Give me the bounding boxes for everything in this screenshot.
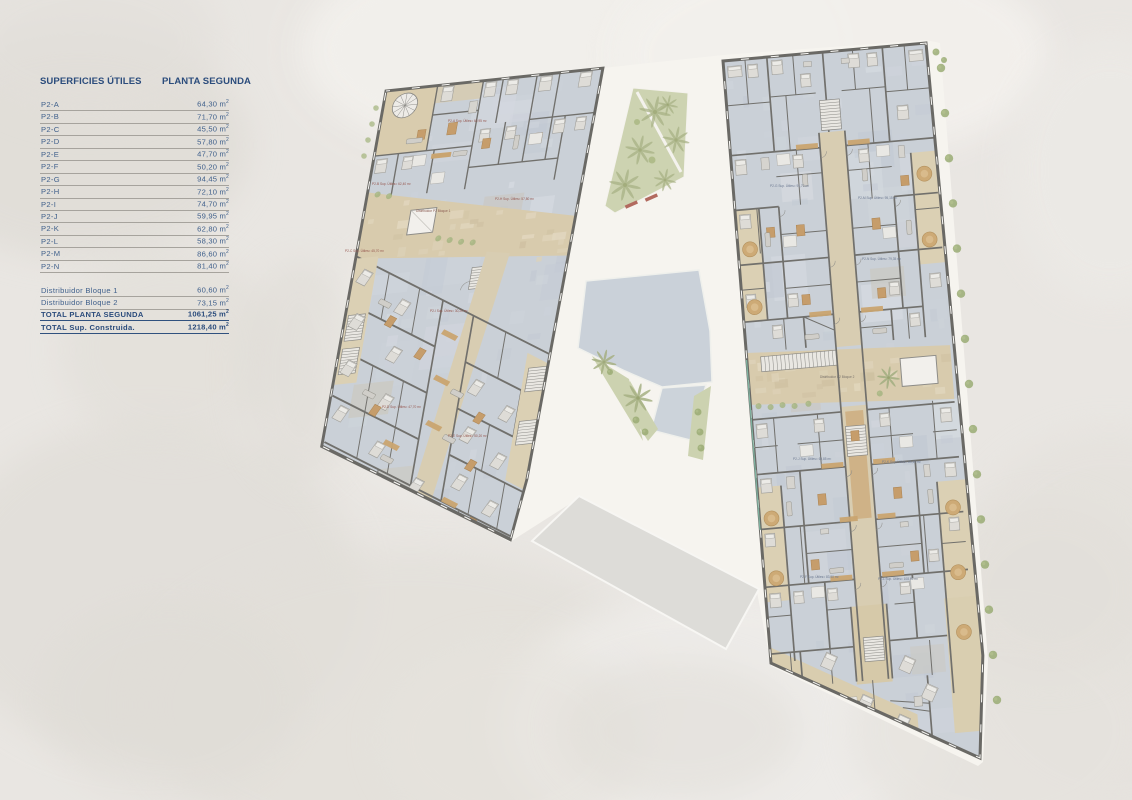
svg-text:Distribuidor P2 Bloque 2: Distribuidor P2 Bloque 2 bbox=[820, 375, 855, 379]
svg-text:P2-M Sup. Útiles= 95,15 m²: P2-M Sup. Útiles= 95,15 m² bbox=[858, 195, 897, 200]
svg-text:P2-E Sup. Útiles= 50,20 m²: P2-E Sup. Útiles= 50,20 m² bbox=[448, 433, 487, 438]
svg-text:P2-N Sup. Útiles= 79,35 m²: P2-N Sup. Útiles= 79,35 m² bbox=[862, 256, 901, 261]
svg-text:P2-K Sup. Útiles= 85,40 m²: P2-K Sup. Útiles= 85,40 m² bbox=[882, 459, 921, 464]
svg-text:P2-C Sup. Útiles= 45,70 m²: P2-C Sup. Útiles= 45,70 m² bbox=[345, 248, 384, 253]
svg-text:P2-I Sup. Útiles= 30,20 m²: P2-I Sup. Útiles= 30,20 m² bbox=[430, 308, 467, 313]
svg-text:P2-A Sup. Útiles= 60,95 m²: P2-A Sup. Útiles= 60,95 m² bbox=[448, 118, 487, 123]
svg-text:P2-L Sup. Útiles= 108,95 m²: P2-L Sup. Útiles= 108,95 m² bbox=[878, 576, 918, 581]
svg-text:P2-J Sup. Útiles= 69,85 m²: P2-J Sup. Útiles= 69,85 m² bbox=[793, 456, 831, 461]
svg-text:P2-F Sup. Útiles= 83,90 m²: P2-F Sup. Útiles= 83,90 m² bbox=[800, 574, 839, 579]
svg-text:P2-D Sup. Útiles= 47,70 m²: P2-D Sup. Útiles= 47,70 m² bbox=[382, 404, 421, 409]
svg-text:P2-H Sup. Útiles= 57,80 m²: P2-H Sup. Útiles= 57,80 m² bbox=[495, 196, 534, 201]
svg-text:P2-G Sup. Útiles= 91,70 m²: P2-G Sup. Útiles= 91,70 m² bbox=[770, 183, 809, 188]
svg-text:P2-B Sup. Útiles= 62,40 m²: P2-B Sup. Útiles= 62,40 m² bbox=[372, 181, 411, 186]
svg-text:Distribuidor P2 Bloque 1: Distribuidor P2 Bloque 1 bbox=[416, 209, 451, 213]
